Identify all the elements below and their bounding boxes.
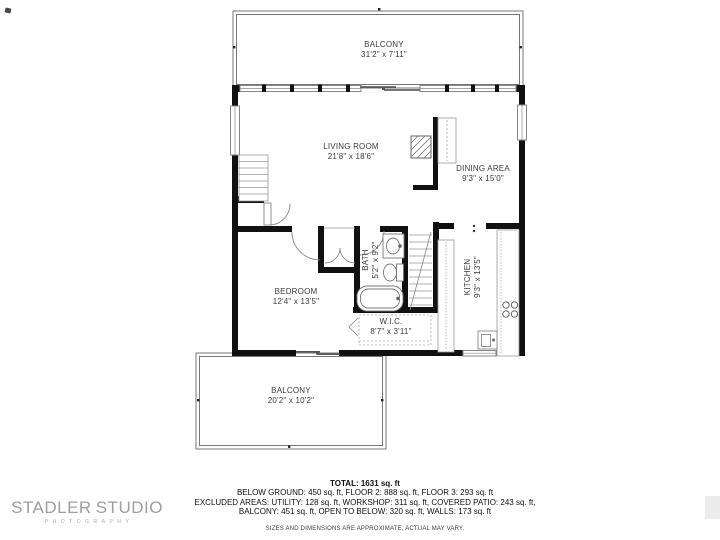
room-name: W.I.C. [331, 317, 451, 327]
stairs-upper-left [239, 155, 268, 201]
floors-sqft-line: BELOW GROUND: 450 sq. ft, FLOOR 2: 888 s… [100, 488, 630, 497]
room-label-living-room: LIVING ROOM 21'8" x 18'6" [291, 142, 411, 162]
room-name: BATH [361, 241, 371, 278]
room-dims: 5'2" x 9'2" [371, 241, 381, 278]
room-dims: 21'8" x 18'6" [291, 152, 411, 162]
logo-text-right: STUDIO [96, 498, 163, 518]
area-summary: TOTAL: 1631 sq. ft BELOW GROUND: 450 sq.… [100, 479, 630, 534]
room-name: KITCHEN [463, 256, 473, 298]
floor-plan-drawing [0, 0, 720, 540]
excluded-areas-line: EXCLUDED AREAS: UTILITY: 128 sq. ft, WOR… [100, 498, 630, 507]
sink-faucet-dot [399, 245, 402, 248]
room-label-wic: W.I.C. 8'7" x 3'11" [331, 317, 451, 337]
room-dims: 12'4" x 13'5" [236, 297, 356, 307]
dining-cabinet [438, 118, 456, 163]
room-name: BALCONY [324, 40, 444, 50]
fireplace-hatched-box [411, 136, 431, 158]
tub-faucet-dot [397, 297, 400, 300]
kitchen-sink [478, 331, 497, 349]
bathtub-inner [361, 289, 400, 308]
disclaimer-text: SIZES AND DIMENSIONS ARE APPROXIMATE, AC… [100, 525, 630, 534]
logo-subtitle: PHOTOGRAPHY [22, 519, 152, 525]
room-name: BALCONY [231, 386, 351, 396]
room-name: LIVING ROOM [291, 142, 411, 152]
logo-text-left: STADLER [11, 498, 92, 518]
room-label-bedroom: BEDROOM 12'4" x 13'5" [236, 287, 356, 307]
kitchen-opening-dots [473, 225, 475, 232]
room-name: DINING AREA [423, 164, 543, 174]
room-dims: 9'3" x 13'5" [473, 256, 483, 298]
floor-plan-page: BALCONY 31'2" x 7'11" LIVING ROOM 21'8" … [0, 0, 720, 540]
room-label-bath: BATH 5'2" x 9'2" [361, 241, 381, 278]
windows [231, 86, 527, 357]
room-dims: 9'3" x 15'0" [423, 174, 543, 184]
excluded-areas-line2: BALCONY: 451 sq. ft, OPEN TO BELOW: 320 … [100, 507, 630, 516]
room-dims: 20'2" x 10'2" [231, 396, 351, 406]
room-label-balcony-bottom: BALCONY 20'2" x 10'2" [231, 386, 351, 406]
toilet-tank [397, 264, 404, 281]
room-dims: 8'7" x 3'11" [331, 327, 451, 337]
stadler-studio-logo: STADLER STUDIO PHOTOGRAPHY [22, 498, 152, 525]
room-dims: 31'2" x 7'11" [324, 50, 444, 60]
room-label-kitchen: KITCHEN 9'3" x 13'5" [463, 256, 483, 298]
room-label-balcony-top: BALCONY 31'2" x 7'11" [324, 40, 444, 60]
stairs-middle [409, 232, 432, 310]
room-label-dining-area: DINING AREA 9'3" x 15'0" [423, 164, 543, 184]
exterior-walls [232, 85, 525, 356]
toilet-bowl [384, 264, 397, 281]
total-sqft-line: TOTAL: 1631 sq. ft [100, 479, 630, 488]
room-name: BEDROOM [236, 287, 356, 297]
